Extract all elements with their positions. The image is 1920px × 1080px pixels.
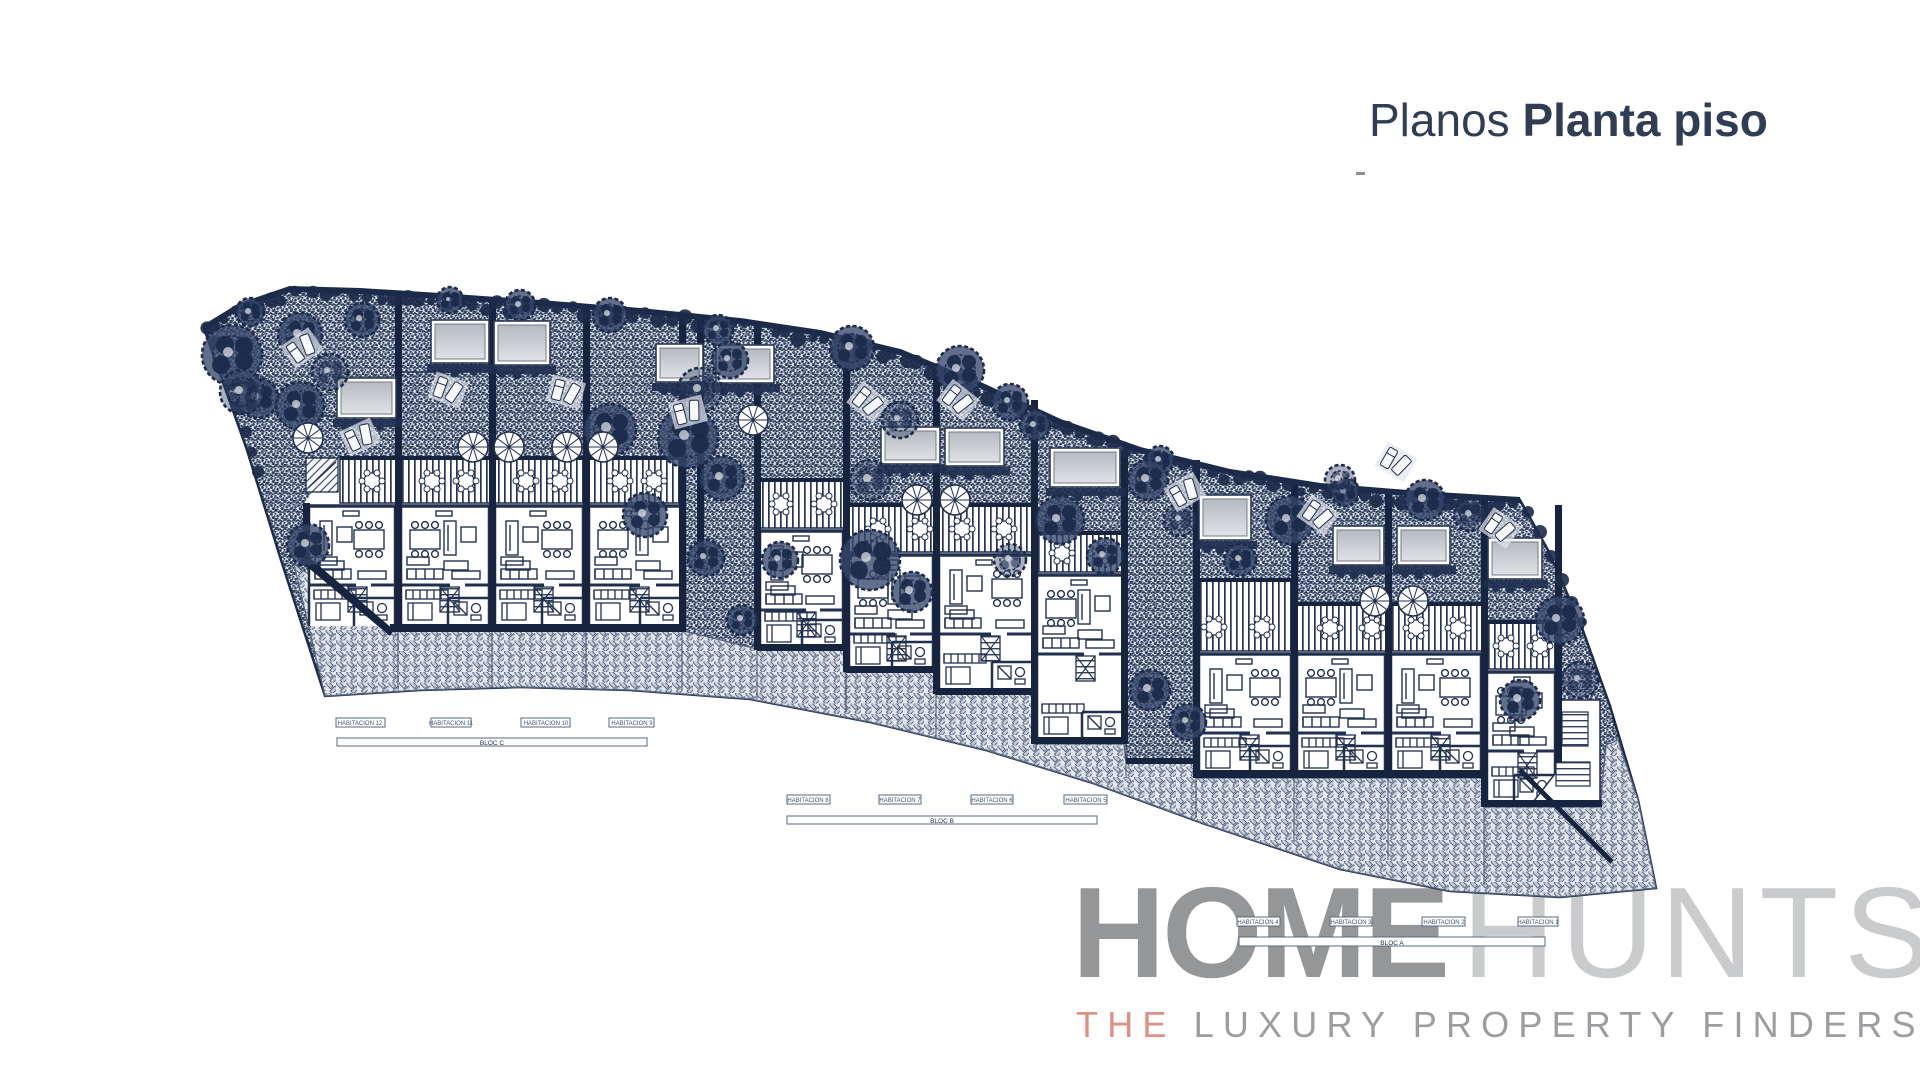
svg-text:THELUXURY PROPERTY FINDERS: THELUXURY PROPERTY FINDERS — [1076, 1004, 1920, 1045]
svg-text:HABITACION 1: HABITACION 1 — [1517, 920, 1559, 926]
svg-text:HABITACION 12: HABITACION 12 — [338, 721, 383, 727]
svg-text:HABITACION 2: HABITACION 2 — [1423, 920, 1465, 926]
svg-text:BLOC B: BLOC B — [930, 818, 954, 825]
svg-text:Planos Planta piso: Planos Planta piso — [1369, 94, 1768, 146]
svg-text:BLOC A: BLOC A — [1380, 940, 1404, 947]
svg-text:HOME: HOME — [1072, 861, 1447, 1005]
svg-text:BLOC C: BLOC C — [480, 740, 505, 747]
svg-text:HABITACION 10: HABITACION 10 — [524, 721, 569, 727]
svg-text:HABITACION 8: HABITACION 8 — [787, 798, 829, 804]
svg-text:HABITACION 11: HABITACION 11 — [429, 721, 474, 727]
svg-text:HABITACION 3: HABITACION 3 — [1330, 920, 1372, 926]
svg-text:HABITACION 7: HABITACION 7 — [879, 798, 921, 804]
svg-text:HABITACION 6: HABITACION 6 — [971, 798, 1013, 804]
svg-text:HABITACION 4: HABITACION 4 — [1237, 920, 1279, 926]
svg-text:HABITACION 9: HABITACION 9 — [611, 721, 653, 727]
svg-text:HABITACION 5: HABITACION 5 — [1065, 798, 1107, 804]
